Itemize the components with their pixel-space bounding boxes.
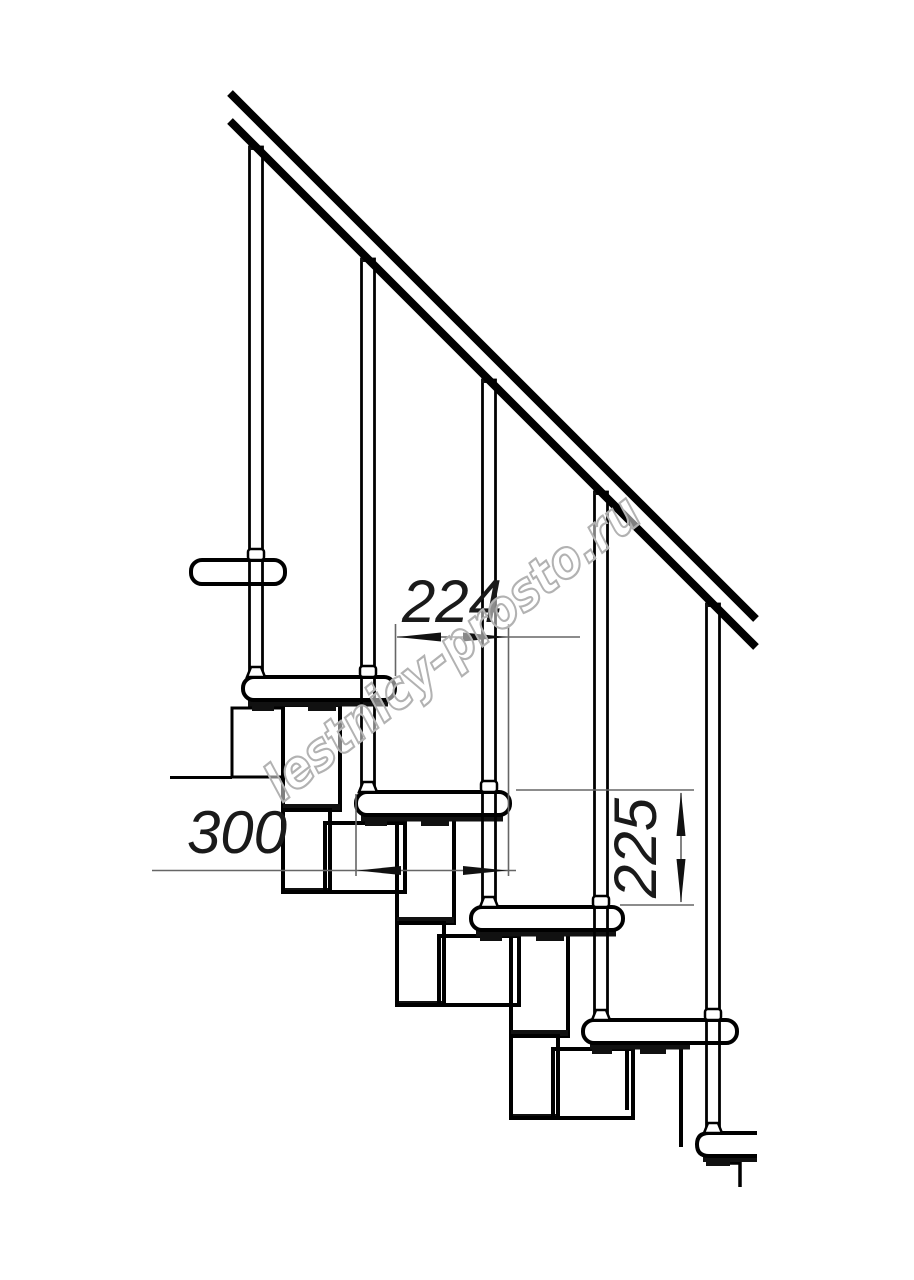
baluster-collar bbox=[705, 1009, 721, 1020]
arrowhead-left bbox=[357, 866, 401, 875]
staircase-drawing: 224 300 225 lestnicy-prosto.ru bbox=[0, 0, 914, 1280]
baluster-5 bbox=[704, 593, 722, 1133]
mount-nub bbox=[536, 936, 564, 941]
baluster-post bbox=[250, 147, 263, 677]
tread-3 bbox=[471, 907, 623, 930]
arrowhead-up bbox=[677, 792, 686, 836]
baluster-post bbox=[707, 604, 720, 1133]
handrail-top-line bbox=[230, 93, 756, 619]
baluster-1 bbox=[247, 136, 265, 677]
staircase-drawing-page: 224 300 225 lestnicy-prosto.ru bbox=[0, 0, 914, 1280]
dimension-label-225: 225 bbox=[602, 797, 669, 899]
mount-nub bbox=[706, 1161, 730, 1166]
dimension-225: 225 bbox=[516, 790, 694, 905]
mount-nub bbox=[640, 1049, 666, 1054]
mount-nub bbox=[480, 936, 502, 941]
tread-4 bbox=[583, 1020, 737, 1043]
module-lower-1 bbox=[283, 810, 330, 892]
mount-nub bbox=[421, 821, 449, 826]
arrowhead-down bbox=[677, 859, 686, 903]
mount-nub bbox=[365, 821, 387, 826]
mount-nub bbox=[252, 706, 274, 711]
baluster-base bbox=[704, 1123, 722, 1133]
baluster-base bbox=[247, 667, 265, 677]
module-lower-3 bbox=[511, 1036, 558, 1118]
baluster-base bbox=[359, 782, 377, 792]
handrail bbox=[230, 93, 756, 647]
module-seat-2 bbox=[439, 936, 519, 1005]
rail-support-bracket bbox=[191, 560, 285, 584]
tread-2 bbox=[356, 792, 510, 815]
baluster-base bbox=[480, 897, 498, 907]
module-seat-1 bbox=[325, 823, 405, 892]
mount-nub bbox=[592, 1049, 612, 1054]
module-lower-2 bbox=[397, 923, 444, 1005]
baluster-collar bbox=[481, 781, 497, 792]
baluster-collar bbox=[248, 549, 264, 560]
module-seat-3 bbox=[553, 1049, 633, 1118]
module-chain bbox=[283, 705, 740, 1187]
dimension-label-300: 300 bbox=[187, 799, 287, 866]
baluster-base bbox=[592, 1010, 610, 1020]
module-partial-step bbox=[715, 1163, 740, 1187]
tread-5-partial bbox=[697, 1133, 757, 1156]
watermark-text: lestnicy-prosto.ru bbox=[253, 483, 652, 813]
arrowhead-right bbox=[463, 866, 507, 875]
